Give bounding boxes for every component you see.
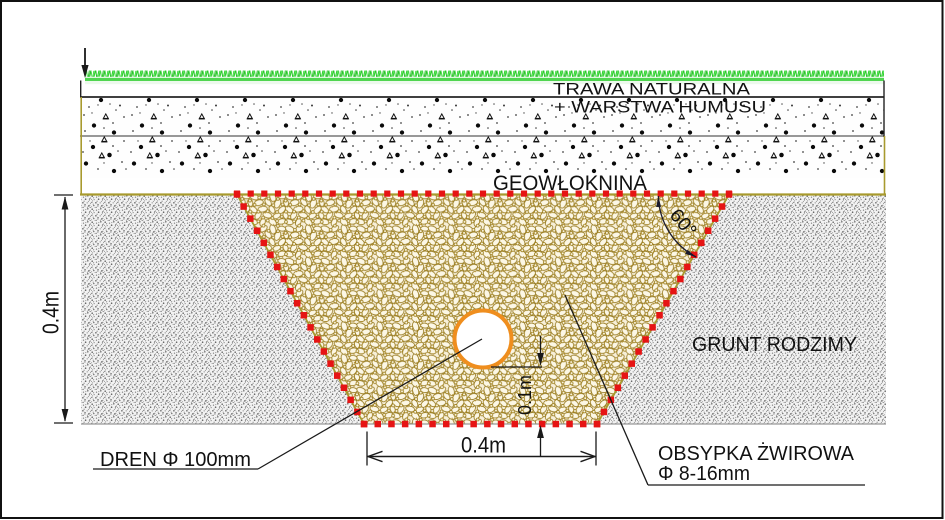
svg-text:OBSYPKA ŻWIROWA: OBSYPKA ŻWIROWA	[658, 442, 855, 465]
svg-text:DREN Φ 100mm: DREN Φ 100mm	[100, 449, 251, 471]
svg-text:GRUNT RODZIMY: GRUNT RODZIMY	[692, 334, 857, 356]
svg-text:Φ 8-16mm: Φ 8-16mm	[658, 463, 750, 485]
svg-text:0.4m: 0.4m	[461, 433, 506, 458]
svg-text:0.1m: 0.1m	[515, 375, 535, 415]
svg-text:0.4m: 0.4m	[38, 291, 64, 334]
svg-text:+ WARSTWA HUMUSU: + WARSTWA HUMUSU	[554, 98, 766, 117]
svg-text:GEOWŁOKNINA: GEOWŁOKNINA	[493, 172, 647, 195]
svg-text:TRAWA NATURALNA: TRAWA NATURALNA	[553, 80, 751, 99]
